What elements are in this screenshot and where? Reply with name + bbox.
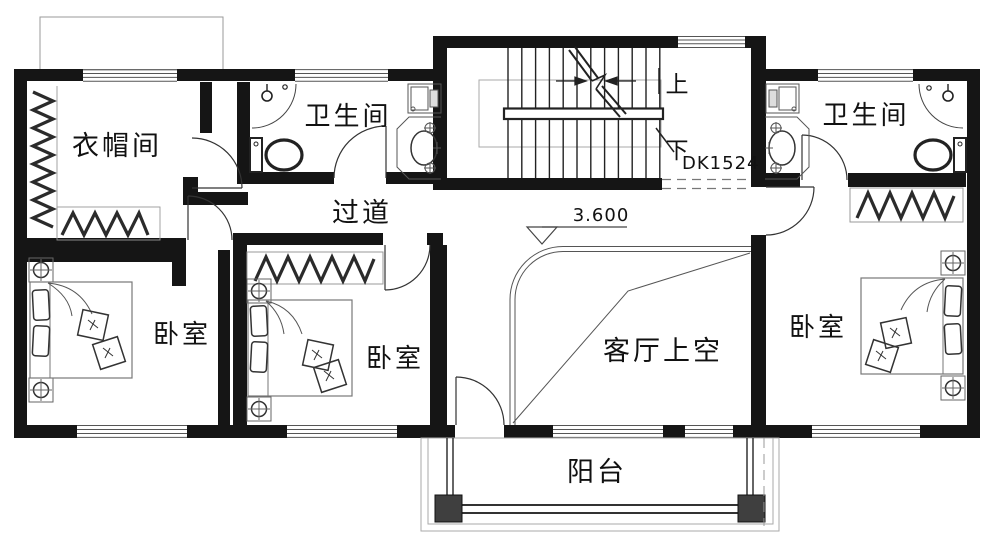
window-void-balcony-a <box>553 426 663 438</box>
wall-top-right <box>766 69 818 81</box>
bedroom-middle-furniture <box>247 252 383 421</box>
stair-code-label: DK1524 <box>682 153 759 174</box>
eave-outline <box>40 17 223 70</box>
toilet-icon <box>250 138 302 172</box>
wall-bottom <box>397 425 455 438</box>
window-void-balcony-b <box>685 426 733 438</box>
wall-top <box>14 69 83 81</box>
pillow <box>250 306 268 337</box>
door-arc <box>334 126 386 178</box>
wall-center-right-lower <box>751 235 766 425</box>
room-label-bath-right: 卫生间 <box>822 101 909 131</box>
door-arc <box>385 245 430 290</box>
stair-treads-upper <box>508 48 660 108</box>
walls <box>14 36 980 438</box>
balcony-column <box>435 495 462 522</box>
bed <box>248 300 352 396</box>
hanger-zigzag-left-icon <box>33 92 53 227</box>
door-cloakroom <box>192 138 242 188</box>
blanket-fold <box>901 279 945 312</box>
bed <box>30 282 132 378</box>
pillow <box>32 290 50 321</box>
shower-head-icon <box>927 84 953 101</box>
nightstand-lamp-icon <box>29 378 53 402</box>
wall-top-right <box>913 69 980 81</box>
door-arc <box>766 187 814 235</box>
window-bottom-bedroom1 <box>77 426 187 438</box>
wall-stub <box>172 238 186 286</box>
wall-corridor-south <box>233 233 383 245</box>
blanket-fold <box>266 301 302 334</box>
toilet-icon <box>915 138 966 172</box>
wall-bedroom2-east <box>430 245 447 425</box>
shower-curtain-arc <box>252 84 296 128</box>
window-top-mid <box>295 70 388 82</box>
wall-bath-right-south <box>848 173 966 187</box>
wall-top <box>177 69 295 81</box>
bed <box>861 278 963 374</box>
nightstand-lamp-icon <box>247 397 271 421</box>
wall-bath-right-south <box>766 173 800 187</box>
wall-bottom <box>187 425 287 438</box>
wall-bottom-pier <box>663 425 685 438</box>
pillow <box>250 342 268 373</box>
wall-right-exterior <box>967 69 980 438</box>
cushion <box>866 340 899 373</box>
wall-stair-bottom <box>433 178 662 190</box>
cloakroom-fixtures <box>33 86 160 240</box>
eave-rect <box>40 17 223 70</box>
shower-head-icon <box>262 84 287 101</box>
door-bath-left <box>334 126 386 178</box>
door-balcony <box>456 377 504 425</box>
wall-bath-left-south <box>237 172 334 184</box>
blanket-fold <box>48 283 92 316</box>
wall-stair-top <box>433 36 678 48</box>
hanger-zigzag-icon <box>857 193 954 218</box>
room-label-balcony: 阳台 <box>567 457 627 488</box>
elevation-value: 3.600 <box>573 205 630 226</box>
bedroom-right-furniture <box>850 188 965 400</box>
floor-plan-page: 3.600 衣帽间 卫生间 卫生间 过道 卧室 卧室 卧室 客厅上空 阳台 上 … <box>0 0 1000 544</box>
pillow <box>944 286 962 317</box>
nightstand-lamp-icon <box>941 251 965 275</box>
window-bottom-bedroom3 <box>812 426 920 438</box>
pillow <box>944 324 962 355</box>
hanger-zigzag-icon <box>255 257 374 281</box>
window-top-left <box>83 70 177 82</box>
nightstand-lamp-icon <box>247 279 271 303</box>
room-label-cloakroom: 衣帽间 <box>72 131 162 162</box>
nightstand-lamp-icon <box>941 376 965 400</box>
room-label-bedroom-middle: 卧室 <box>366 344 424 374</box>
cushion <box>93 337 126 370</box>
washbasin-icon <box>397 117 441 179</box>
door-arc <box>456 377 504 425</box>
cushion <box>78 310 109 341</box>
room-label-living-void: 客厅上空 <box>603 336 723 367</box>
arrow-head-left-icon <box>606 77 617 85</box>
arrow-head-right-icon <box>575 77 586 85</box>
wall-bottom <box>920 425 980 438</box>
hanger-zigzag-bottom-icon <box>62 213 148 235</box>
balcony-railing <box>448 505 752 513</box>
room-label-bedroom-right: 卧室 <box>789 313 847 343</box>
wall-bedroom2-west <box>233 243 247 425</box>
window-stair <box>678 37 745 48</box>
wall-cloakroom-east <box>200 82 212 133</box>
window-top-right <box>818 70 913 82</box>
bedroom-left-furniture <box>29 258 132 402</box>
door-bedroom-right <box>766 187 814 235</box>
wall-bottom <box>14 425 77 438</box>
wall-bottom <box>766 425 812 438</box>
wall-bottom <box>504 425 553 438</box>
wall-bath-left-west <box>237 82 250 184</box>
wall-left-exterior <box>14 69 27 438</box>
balcony-column <box>738 495 765 522</box>
floor-plan-drawing: 3.600 衣帽间 卫生间 卫生间 过道 卧室 卧室 卧室 客厅上空 阳台 上 … <box>0 0 1000 544</box>
wall-corridor-south <box>427 233 443 245</box>
wall-bath-left-south <box>386 172 443 184</box>
room-label-bedroom-left: 卧室 <box>153 320 211 350</box>
stair-up-label: 上 <box>666 72 689 98</box>
window-bottom-bedroom2 <box>287 426 397 438</box>
door-arc <box>192 138 242 188</box>
wardrobe <box>850 188 963 222</box>
stair-handrail <box>504 109 663 120</box>
shower-curtain-arc <box>919 84 963 128</box>
void-edge-dashed <box>662 180 751 189</box>
washing-machine-icon <box>766 84 799 113</box>
wall-bottom-pier <box>733 425 766 438</box>
room-label-corridor: 过道 <box>332 198 392 229</box>
elevation-triangle-icon <box>527 227 557 244</box>
door-bedroom-middle <box>385 245 430 290</box>
wall-corridor-stub <box>183 192 248 205</box>
stair-treads-lower <box>508 120 660 178</box>
room-label-bath-left: 卫生间 <box>304 102 391 132</box>
wall-bedroom1-east <box>218 250 230 427</box>
bathroom-right-fixtures <box>765 84 966 179</box>
elevation-marker: 3.600 <box>527 205 629 244</box>
pillow <box>32 326 50 357</box>
